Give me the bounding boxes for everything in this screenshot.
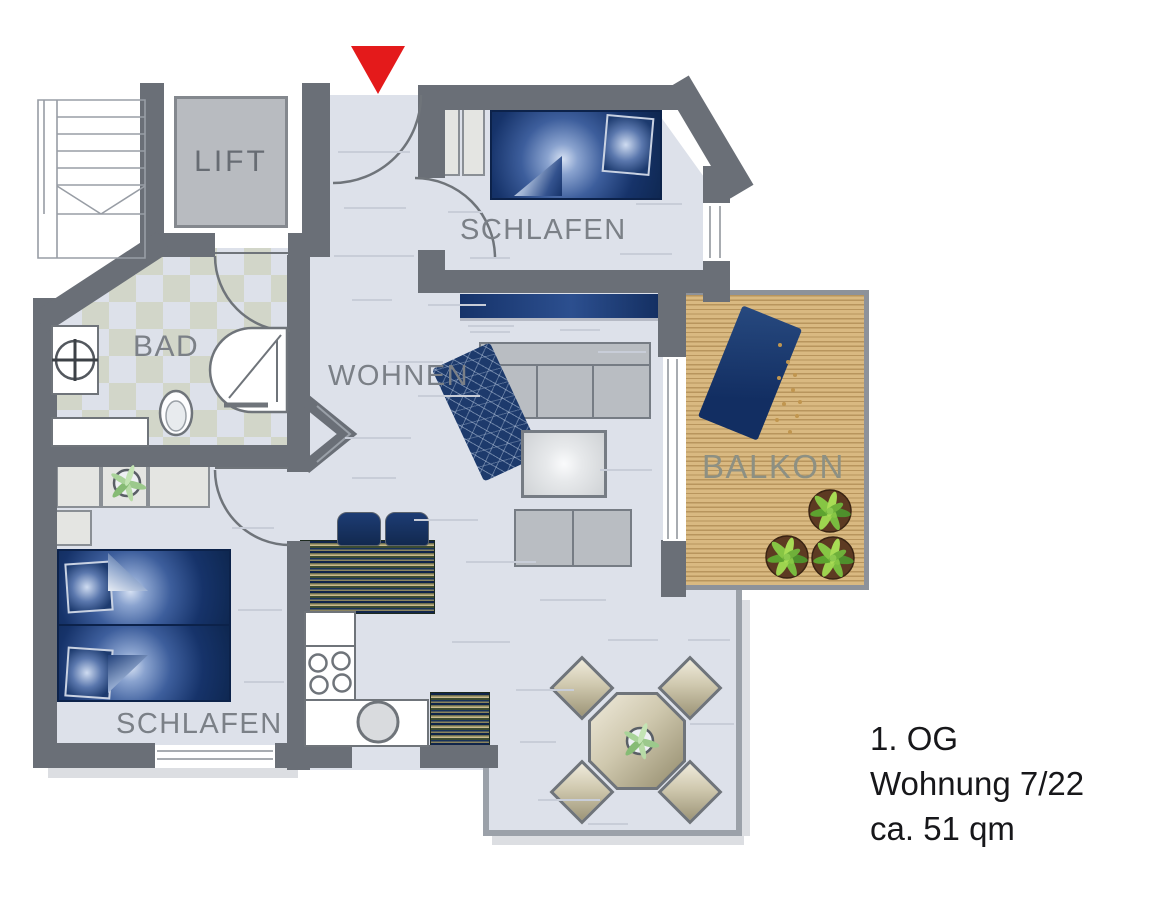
- plan-info: 1. OG Wohnung 7/22 ca. 51 qm: [870, 716, 1084, 851]
- wall: [418, 270, 727, 293]
- dining-table: [588, 692, 686, 790]
- stairs-icon: [38, 100, 145, 258]
- coffee-table: [521, 430, 607, 498]
- wall: [420, 745, 498, 768]
- sofa-backrest: [481, 344, 649, 364]
- wall-shadow: [742, 600, 750, 836]
- wardrobe: [56, 462, 101, 508]
- balcony-door-glazing: [663, 357, 686, 541]
- balcony-label: BALKON: [702, 448, 845, 486]
- pillow: [64, 646, 113, 699]
- wall: [287, 745, 352, 768]
- kitchen-table: [300, 540, 435, 614]
- wall: [33, 298, 57, 767]
- sofa-cushion: [538, 366, 593, 417]
- room-label-schlafen-bottom: SCHLAFEN: [116, 708, 283, 741]
- loveseat-cushion: [516, 511, 572, 565]
- loveseat-cushion: [574, 511, 630, 565]
- pillow: [64, 560, 113, 613]
- wall: [418, 85, 690, 110]
- info-area: ca. 51 qm: [870, 806, 1084, 851]
- floor-door-threshold: [287, 472, 312, 542]
- bay-window-left: [483, 768, 489, 836]
- wall: [33, 445, 310, 467]
- wall-shadow: [48, 768, 298, 778]
- wall: [703, 166, 730, 206]
- lift-cabin: LIFT: [174, 96, 288, 228]
- wall: [287, 465, 310, 472]
- window: [703, 203, 730, 261]
- info-unit: Wohnung 7/22: [870, 761, 1084, 806]
- sofa-cushion: [594, 366, 649, 417]
- sideboard: [460, 294, 663, 318]
- room-label-schlafen-top: SCHLAFEN: [460, 214, 627, 247]
- wall: [287, 255, 310, 467]
- wall: [288, 233, 330, 257]
- room-label-wohnen: WOHNEN: [328, 360, 469, 393]
- wall: [302, 83, 330, 235]
- wardrobe: [101, 462, 148, 508]
- wall: [287, 541, 310, 770]
- loveseat: [514, 509, 632, 567]
- kitchen-chair: [337, 512, 381, 546]
- floor-entrance-hall: [330, 95, 425, 275]
- wall: [140, 83, 164, 235]
- bay-window-right: [736, 590, 742, 836]
- window: [155, 746, 275, 765]
- wall-shadow: [492, 836, 744, 845]
- info-floor: 1. OG: [870, 716, 1084, 761]
- wall: [661, 540, 686, 597]
- wall: [418, 85, 445, 178]
- wall: [658, 291, 686, 357]
- pillow: [602, 114, 655, 176]
- wall: [33, 743, 155, 768]
- wardrobe: [148, 462, 210, 508]
- lift-label: LIFT: [194, 145, 268, 179]
- wall: [140, 233, 215, 257]
- kitchen-chair: [385, 512, 429, 546]
- bay-window-bottom: [483, 830, 742, 836]
- wardrobe: [462, 106, 485, 176]
- kitchen-counter-wood: [430, 692, 490, 749]
- entrance-arrow-icon: [351, 46, 405, 94]
- floor-plan: BALKON LIFT: [0, 0, 1152, 912]
- room-label-bad: BAD: [133, 330, 199, 364]
